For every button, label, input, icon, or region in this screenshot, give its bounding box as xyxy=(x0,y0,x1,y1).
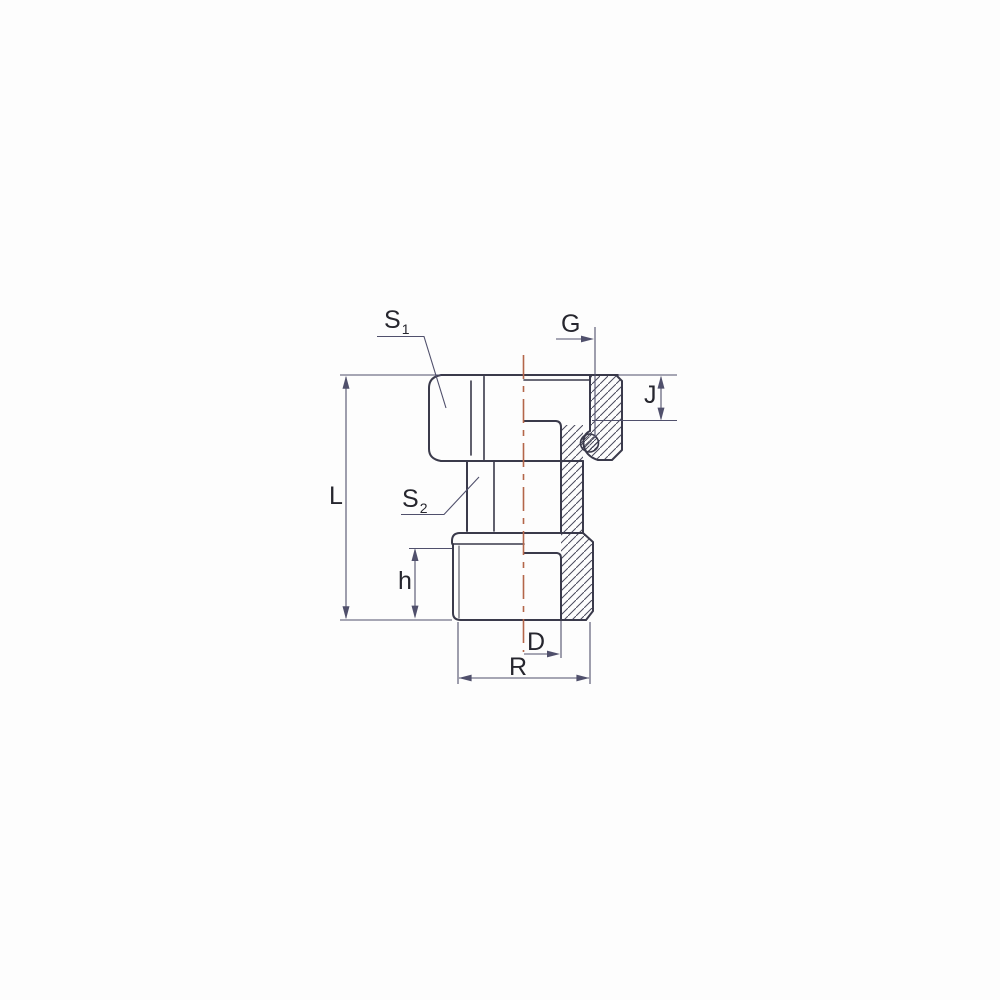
dim-label-s1: S1 xyxy=(384,308,409,336)
dim-label-j: J xyxy=(644,383,657,408)
dim-label-s1-main: S xyxy=(384,306,401,334)
fitting-section-drawing xyxy=(0,0,1000,1000)
dim-label-s1-sub: 1 xyxy=(402,321,410,337)
dim-label-r: R xyxy=(509,655,527,680)
o-ring xyxy=(581,434,599,452)
dim-label-d: D xyxy=(527,630,545,655)
section-hatching xyxy=(561,375,622,620)
dim-label-g: G xyxy=(561,312,580,337)
dim-label-s2-sub: 2 xyxy=(420,500,428,516)
technical-drawing-canvas: S1 G J L S2 h D R xyxy=(0,0,1000,1000)
dim-label-h: h xyxy=(398,569,412,594)
dim-label-s2: S2 xyxy=(402,487,427,515)
dim-label-s2-main: S xyxy=(402,485,419,513)
dim-label-l: L xyxy=(329,484,343,509)
dimension-lines xyxy=(340,327,677,684)
